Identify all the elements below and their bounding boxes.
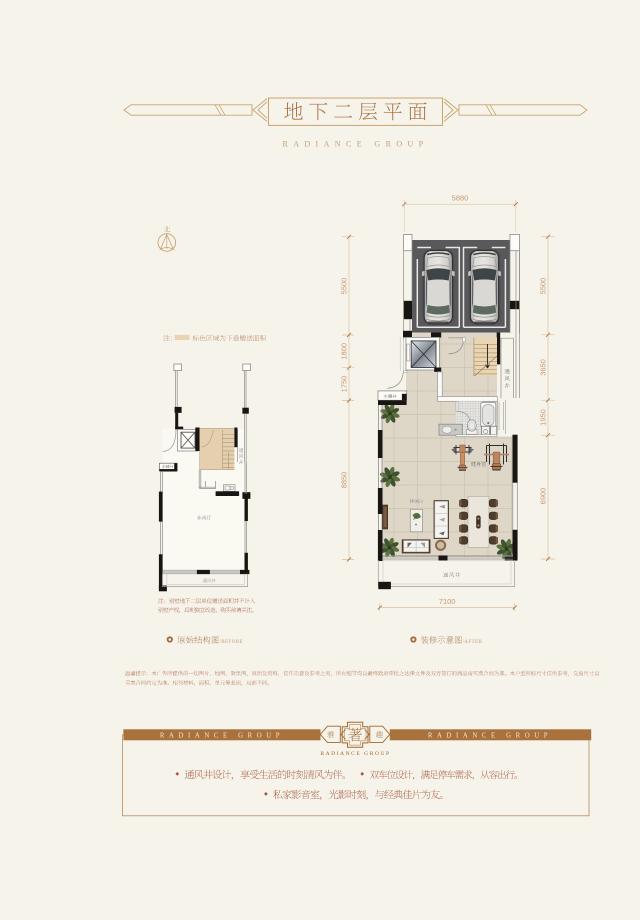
- svg-text:8850: 8850: [340, 472, 349, 489]
- svg-text:RADIANCE GROUP: RADIANCE GROUP: [320, 751, 390, 757]
- svg-text:5500: 5500: [340, 278, 349, 295]
- svg-text:6900: 6900: [539, 488, 548, 505]
- svg-text:1950: 1950: [539, 409, 548, 426]
- svg-text:RADIANCE GROUP: RADIANCE GROUP: [160, 733, 284, 740]
- svg-text:RADIANCE GROUP: RADIANCE GROUP: [282, 140, 428, 149]
- svg-text:1750: 1750: [340, 376, 349, 393]
- svg-text:/BEFORE: /BEFORE: [220, 640, 244, 645]
- svg-text:5880: 5880: [452, 194, 469, 203]
- svg-text:1800: 1800: [340, 343, 349, 360]
- svg-text:RADIANCE GROUP: RADIANCE GROUP: [428, 733, 552, 740]
- svg-text:3650: 3650: [539, 359, 548, 376]
- svg-text:5500: 5500: [539, 278, 548, 295]
- svg-text:7100: 7100: [439, 597, 456, 606]
- svg-text:/AFTER: /AFTER: [463, 640, 483, 645]
